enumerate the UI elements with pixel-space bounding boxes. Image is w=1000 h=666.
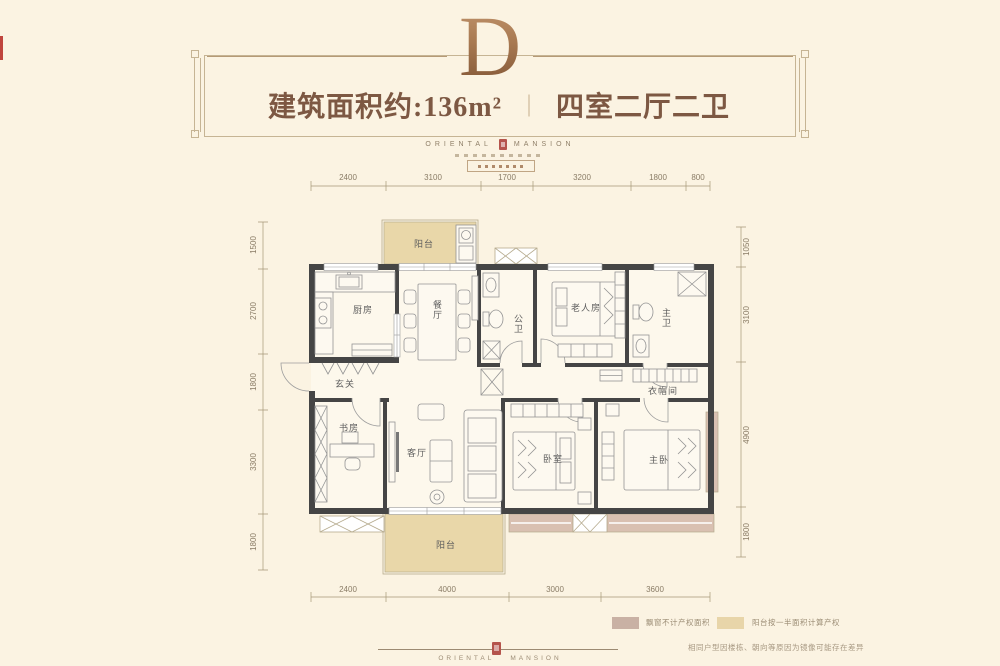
dimension-bottom: 2400 4000 3000 3600 — [311, 585, 710, 602]
svg-text:1800: 1800 — [249, 373, 258, 391]
svg-text:4000: 4000 — [438, 585, 456, 594]
footer-brand-right: MANSION — [510, 655, 561, 662]
room-label-cloakroom: 衣帽间 — [648, 385, 678, 396]
room-label-bedroom: 卧室 — [543, 453, 563, 464]
room-label-balcony-north: 阳台 — [414, 238, 434, 249]
svg-text:3000: 3000 — [546, 585, 564, 594]
legend-bay-window-label: 飘窗不计产权面积 — [646, 617, 710, 629]
svg-text:1500: 1500 — [249, 236, 258, 254]
svg-text:1800: 1800 — [742, 523, 751, 541]
legend-bay-window-swatch — [612, 617, 639, 629]
dimension-left: 1500 2700 1800 3300 1800 — [249, 222, 268, 570]
room-label-study: 书房 — [339, 422, 359, 433]
dimension-top: 2400 3100 1700 3200 1800 800 — [311, 173, 710, 191]
room-label-balcony-south: 阳台 — [436, 539, 456, 550]
floor-plan: 阳台 厨房 餐厅 公卫 老人房 主卫 玄关 衣帽间 书房 客厅 卧室 主卧 阳台… — [0, 0, 1000, 666]
footer-brand-left: ORIENTAL — [438, 655, 494, 662]
room-label-kitchen: 厨房 — [353, 304, 373, 315]
room-label-master-bedroom: 主卧 — [649, 454, 669, 465]
floorplan-page: D 建筑面积约:136m² ｜ 四室二厅二卫 ORIENTAL MANSION — [0, 0, 1000, 666]
svg-text:2700: 2700 — [249, 302, 258, 320]
legend-balcony-swatch — [717, 617, 744, 629]
svg-text:1700: 1700 — [498, 173, 516, 182]
svg-text:3200: 3200 — [573, 173, 591, 182]
legend-balcony-label: 阳台按一半面积计算产权 — [752, 617, 840, 629]
footer-seal-icon — [492, 642, 501, 655]
room-label-guest-bath: 公卫 — [513, 314, 523, 334]
svg-text:2400: 2400 — [339, 173, 357, 182]
svg-text:4900: 4900 — [742, 426, 751, 444]
svg-text:1800: 1800 — [249, 533, 258, 551]
svg-text:3600: 3600 — [646, 585, 664, 594]
svg-text:1800: 1800 — [649, 173, 667, 182]
svg-text:2400: 2400 — [339, 585, 357, 594]
svg-text:3100: 3100 — [742, 306, 751, 324]
room-label-dining: 餐厅 — [432, 299, 442, 320]
room-label-living: 客厅 — [407, 447, 427, 458]
room-label-master-bath: 主卫 — [661, 307, 671, 328]
svg-text:1050: 1050 — [742, 238, 751, 256]
svg-text:3300: 3300 — [249, 453, 258, 471]
svg-text:800: 800 — [691, 173, 705, 182]
svg-text:3100: 3100 — [424, 173, 442, 182]
dimension-right: 1050 3100 4900 1800 — [736, 227, 751, 557]
footer-brand: ORIENTAL MANSION — [0, 655, 1000, 662]
room-label-foyer: 玄关 — [335, 378, 355, 389]
footer-disclaimer: 相同户型因楼栋、朝向等原因为镜像可能存在差异 — [688, 642, 864, 653]
room-label-elder-room: 老人房 — [571, 302, 601, 313]
